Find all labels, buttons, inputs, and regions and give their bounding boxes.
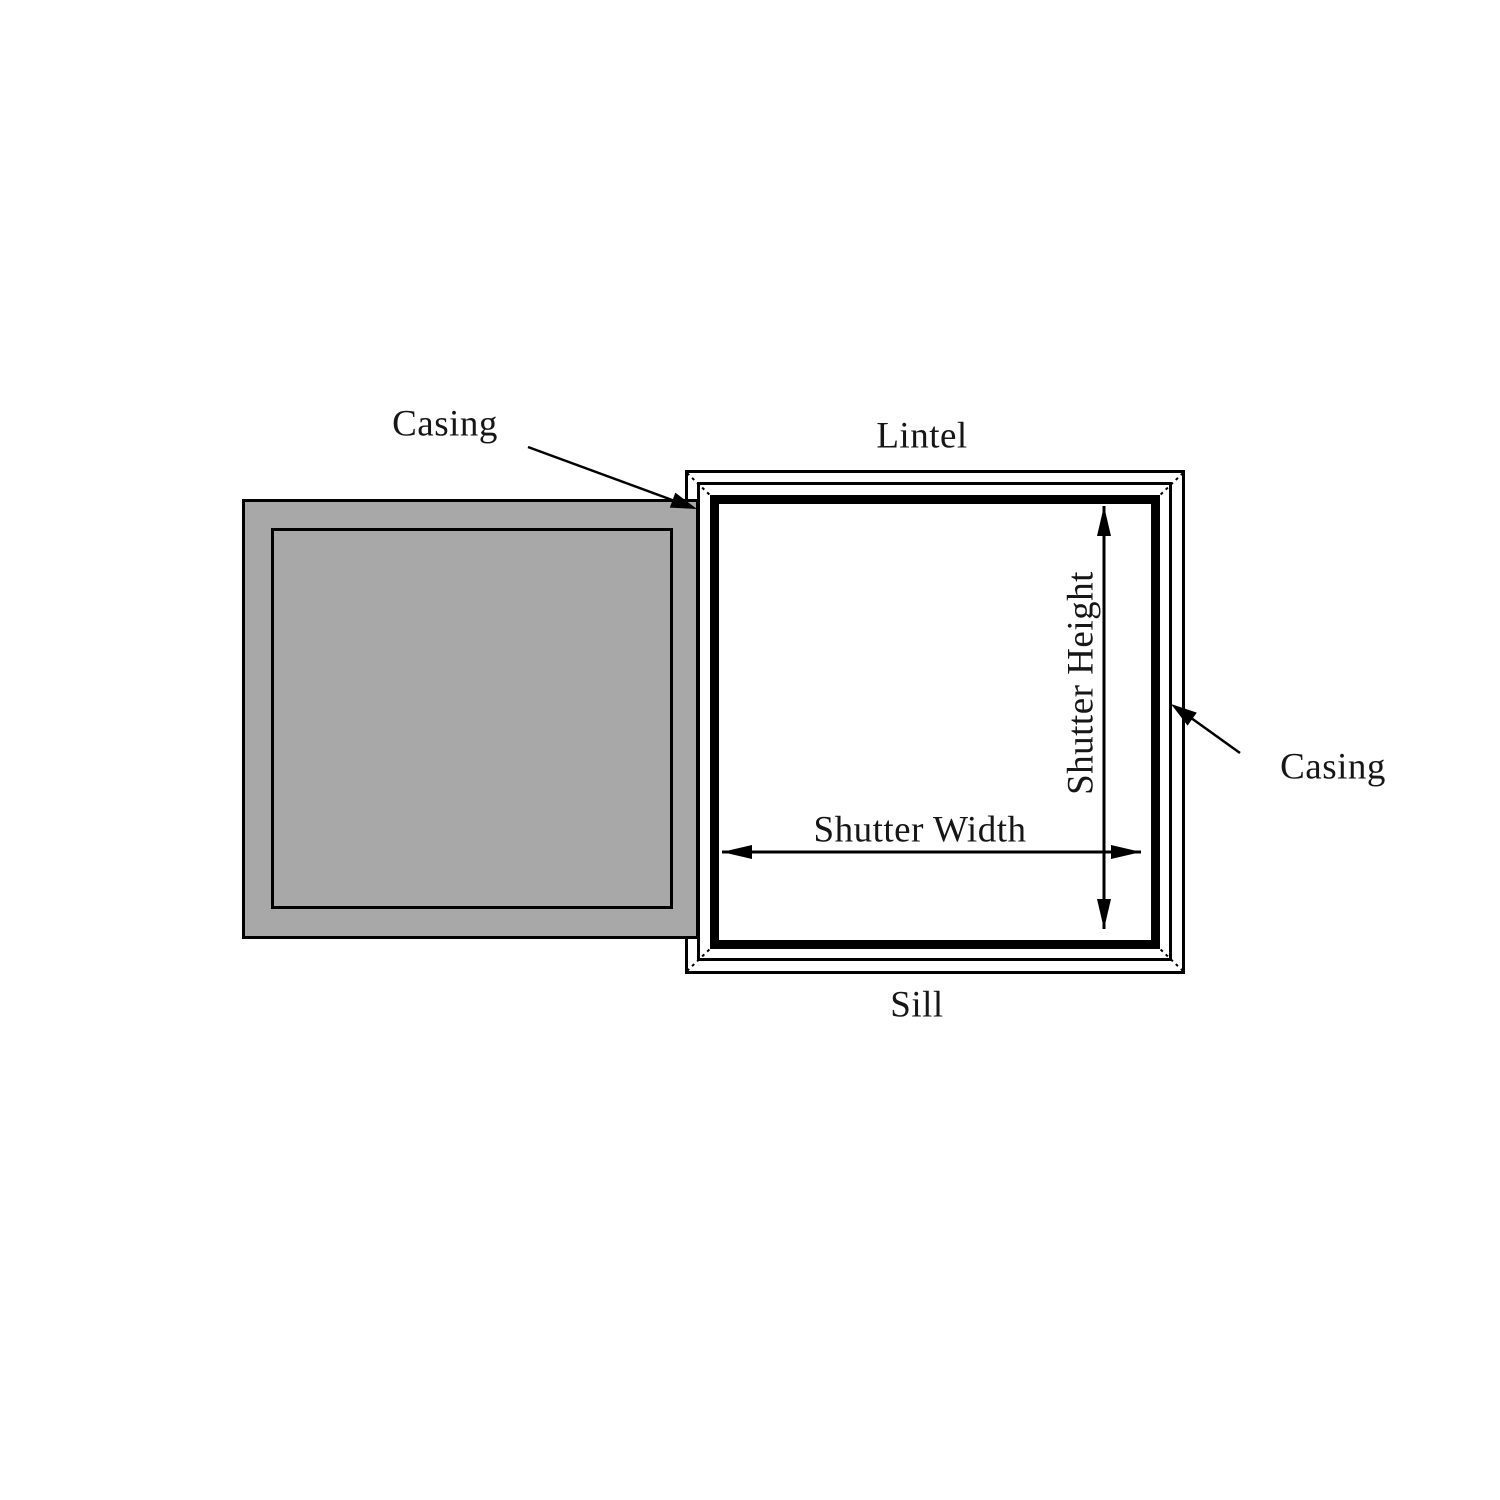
casing-leader-right-arrowhead	[1171, 704, 1197, 726]
casing-label-right: Casing	[1280, 746, 1386, 789]
sill-label: Sill	[890, 984, 943, 1027]
miter-joint-line-top-left	[687, 473, 713, 498]
shutter-height-arrowhead-bottom	[1097, 899, 1111, 929]
diagram-canvas: Casing Lintel Sill Casing Shutter Width …	[0, 0, 1500, 1500]
shutter-height-arrowhead-top	[1097, 506, 1111, 536]
casing-leader-left-arrowhead	[670, 493, 697, 509]
shutter-height-label: Shutter Height	[1060, 571, 1103, 795]
casing-leader-left	[528, 447, 683, 504]
shutter-width-arrowhead-left	[722, 845, 752, 859]
shutter-width-label: Shutter Width	[814, 809, 1027, 852]
miter-joint-line-bottom-right	[1157, 946, 1183, 971]
lintel-label: Lintel	[876, 415, 967, 458]
annotation-overlay	[0, 0, 1500, 1500]
casing-label-left: Casing	[392, 403, 498, 446]
miter-joint-line-top-right	[1157, 473, 1183, 498]
shutter-width-arrowhead-right	[1111, 845, 1141, 859]
miter-joint-line-bottom-left	[687, 946, 713, 971]
